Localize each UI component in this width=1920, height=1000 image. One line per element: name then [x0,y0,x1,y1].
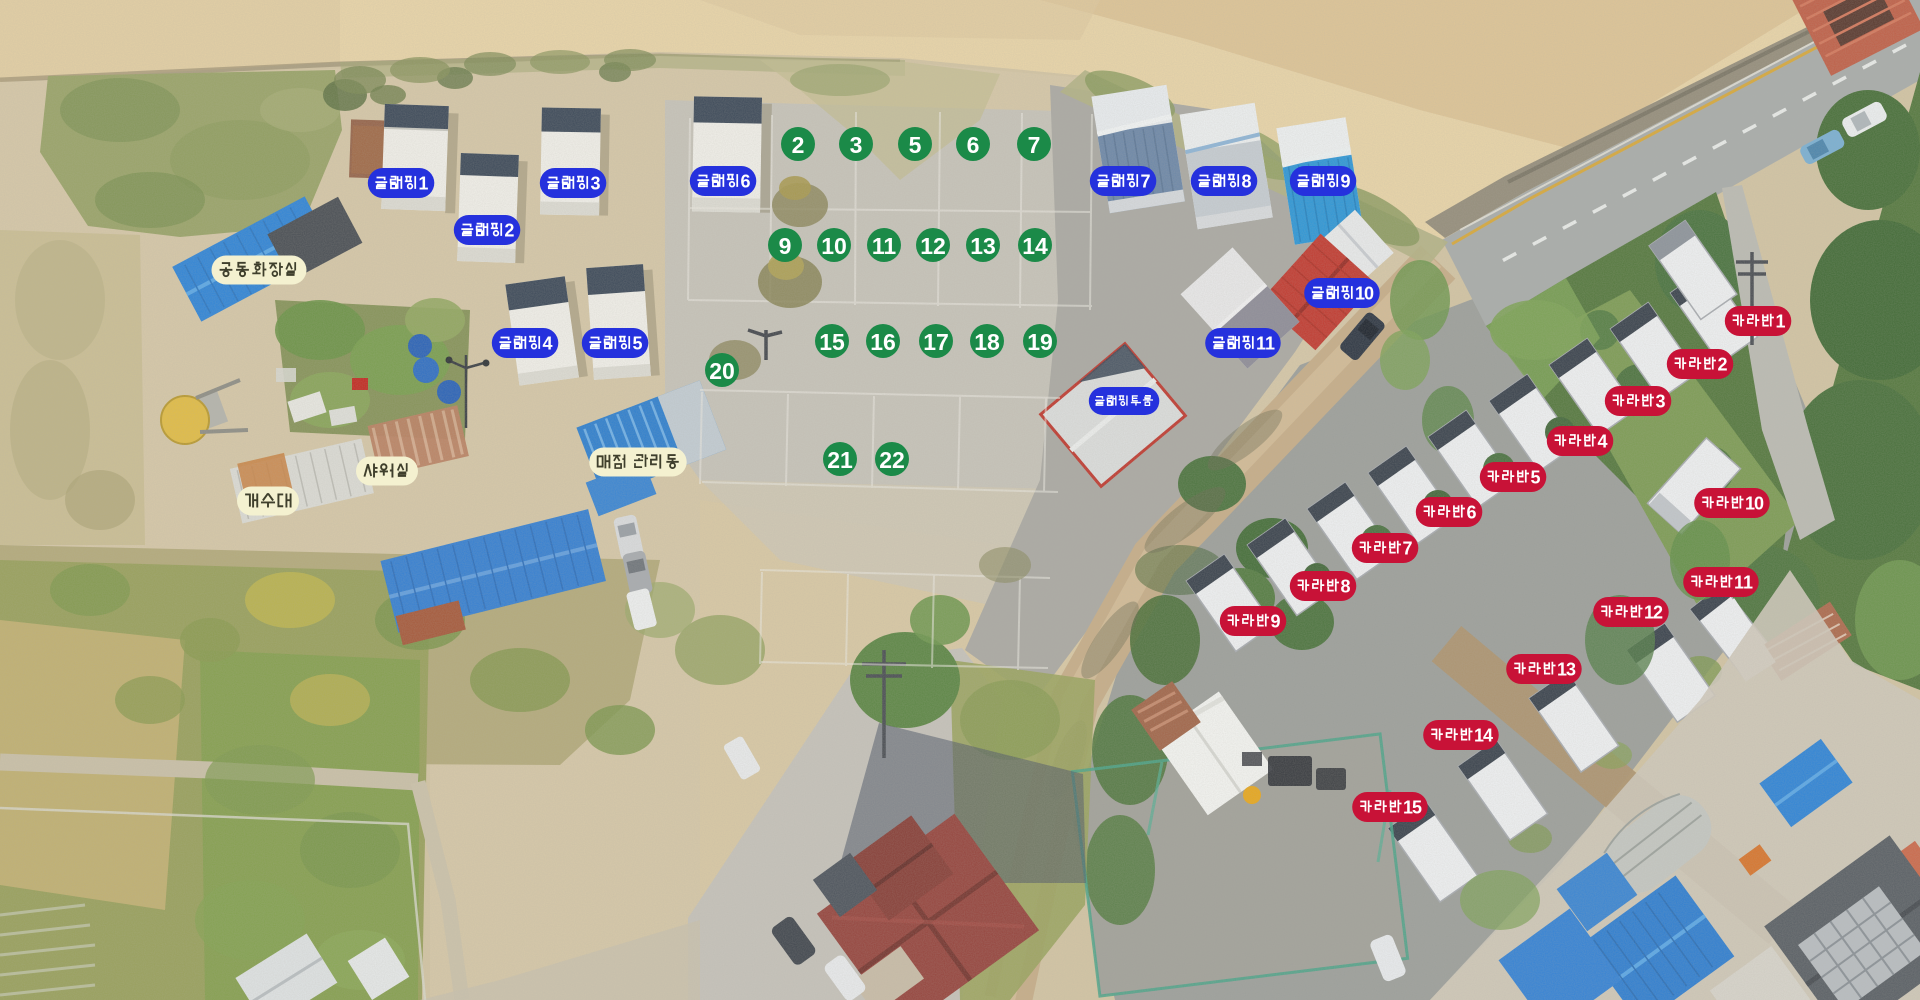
svg-text:7: 7 [1028,132,1041,158]
svg-text:4: 4 [542,334,552,354]
svg-text:9: 9 [1340,172,1350,192]
svg-text:5: 5 [909,132,922,158]
svg-text:7: 7 [1140,172,1150,192]
svg-text:20: 20 [709,358,735,384]
svg-text:2: 2 [1653,603,1663,623]
svg-text:4: 4 [1597,432,1607,452]
svg-text:8: 8 [1340,577,1350,597]
svg-text:1: 1 [418,174,428,194]
svg-text:2: 2 [792,132,805,158]
svg-text:2: 2 [504,221,514,241]
svg-text:3: 3 [1566,660,1576,680]
svg-text:11: 11 [872,233,897,259]
svg-text:14: 14 [1022,233,1048,259]
svg-text:17: 17 [923,329,949,355]
svg-text:19: 19 [1027,329,1053,355]
svg-text:1: 1 [1743,573,1753,593]
svg-text:8: 8 [1241,172,1251,192]
svg-text:5: 5 [1412,798,1422,818]
svg-text:18: 18 [974,329,1000,355]
svg-text:22: 22 [879,447,905,473]
svg-text:7: 7 [1402,539,1412,559]
svg-text:6: 6 [740,172,750,192]
svg-text:21: 21 [827,447,853,473]
svg-text:4: 4 [1483,726,1493,746]
svg-text:16: 16 [870,329,896,355]
svg-text:2: 2 [1717,355,1727,375]
svg-text:3: 3 [850,132,863,158]
svg-text:3: 3 [1655,392,1665,412]
svg-text:3: 3 [590,174,600,194]
svg-text:1: 1 [1775,312,1785,332]
svg-text:0: 0 [1364,284,1374,304]
svg-text:12: 12 [920,233,946,259]
svg-text:0: 0 [1754,494,1764,514]
svg-text:6: 6 [1466,503,1476,523]
svg-text:5: 5 [632,334,642,354]
svg-text:9: 9 [779,233,792,259]
svg-text:1: 1 [1265,334,1275,354]
svg-text:9: 9 [1270,612,1280,632]
svg-text:13: 13 [970,233,996,259]
svg-text:15: 15 [819,329,845,355]
svg-text:5: 5 [1530,468,1540,488]
svg-text:10: 10 [821,233,847,259]
svg-text:6: 6 [967,132,980,158]
